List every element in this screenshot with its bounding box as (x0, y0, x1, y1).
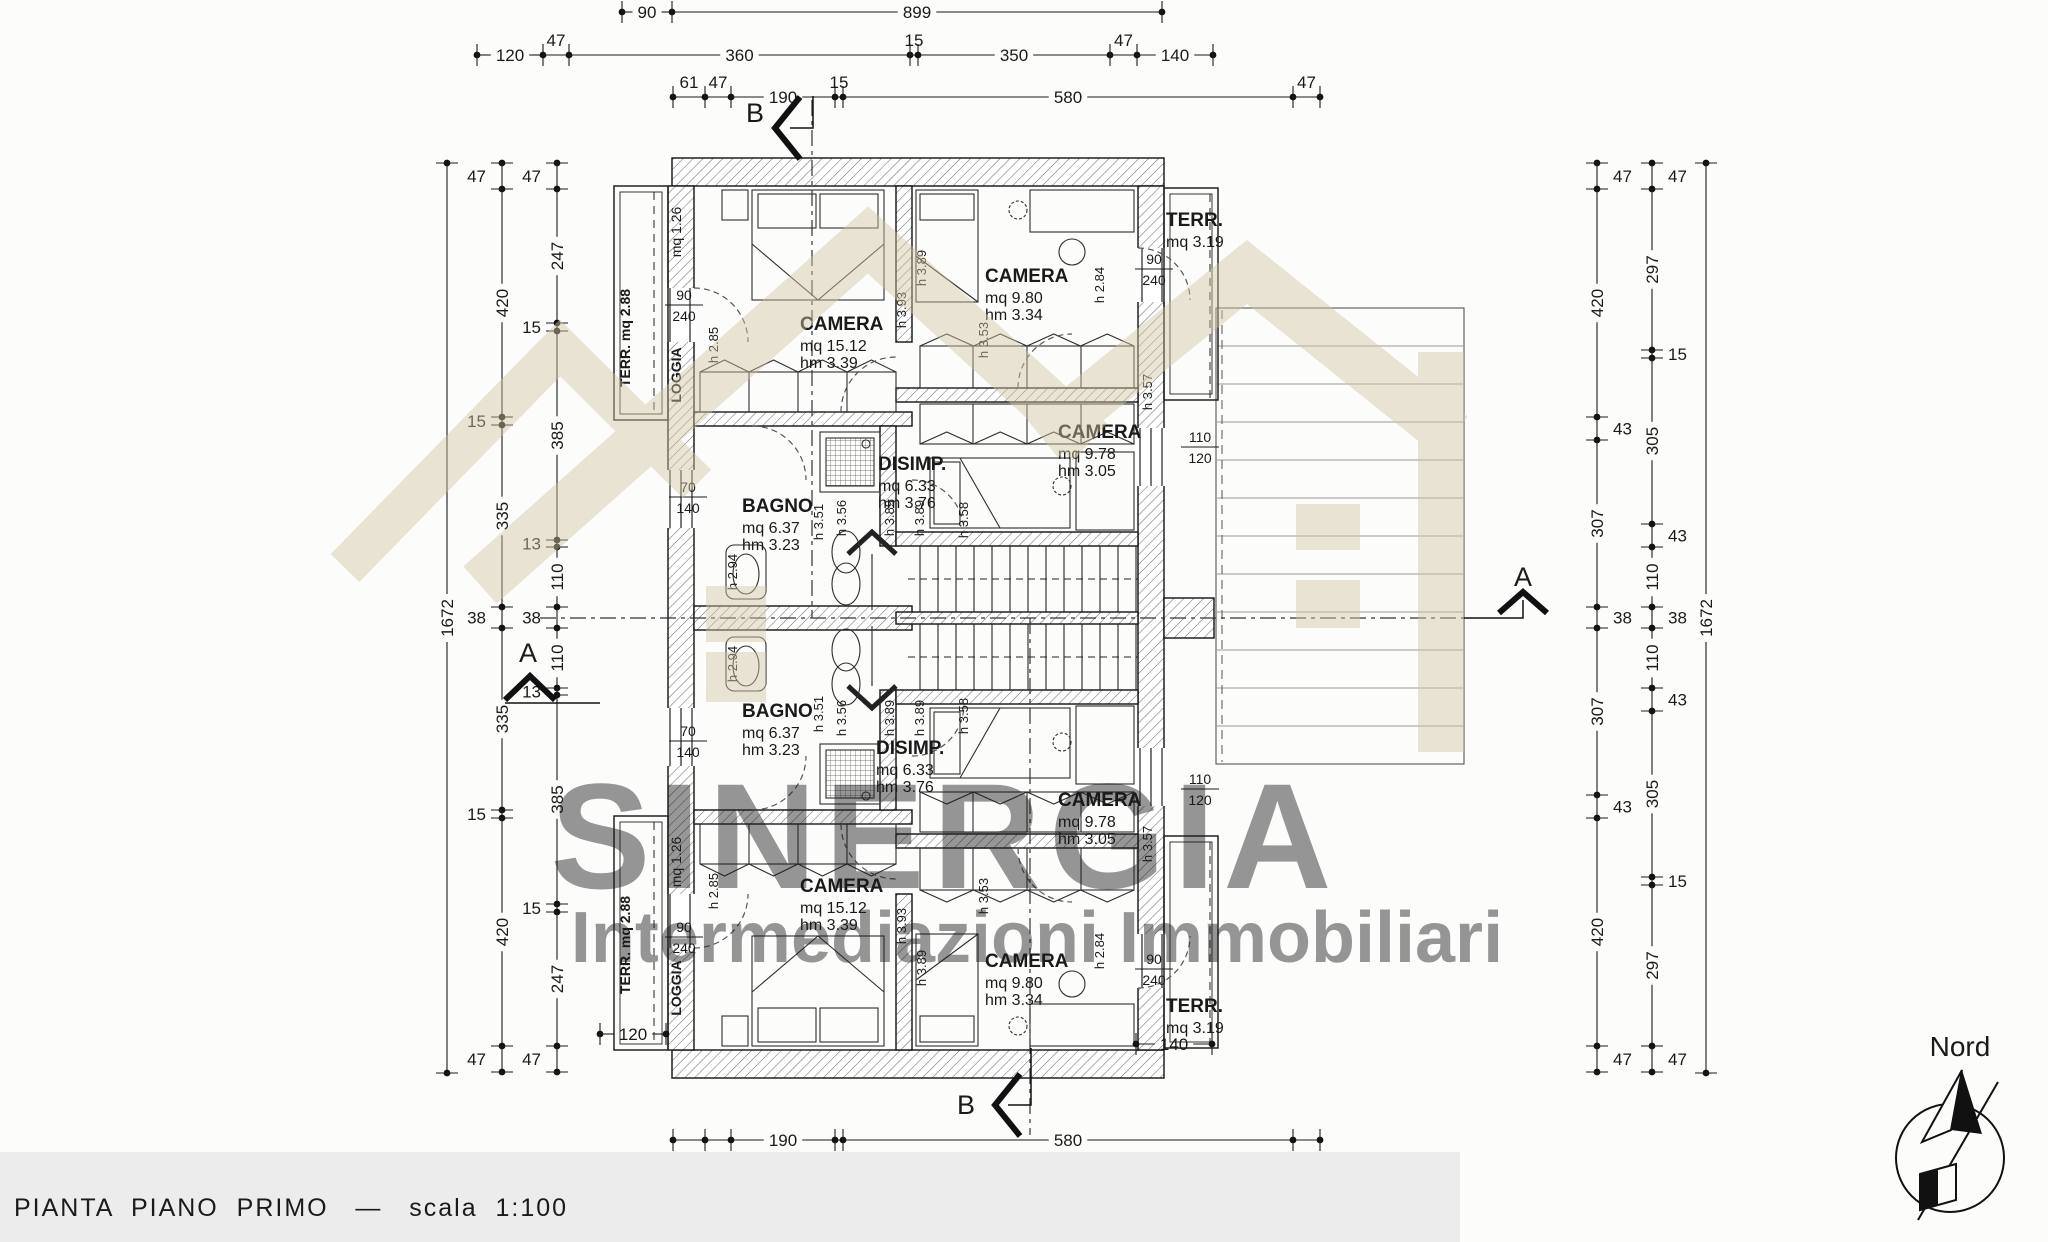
dim-value: 350 (1000, 46, 1028, 65)
opening-height: 120 (1188, 450, 1212, 466)
dim-value: 15 (830, 73, 849, 92)
room-height: hm 3.39 (800, 355, 858, 372)
dim-value: 1672 (438, 599, 457, 637)
dim-value: 307 (1588, 697, 1607, 725)
height-label: h 3.89 (912, 700, 927, 736)
watermark-house-wall (1418, 352, 1464, 752)
room-name: TERR. (1166, 210, 1223, 231)
dim-value: 190 (769, 1131, 797, 1150)
section-letter: B (746, 98, 764, 128)
dim-value: 305 (1643, 780, 1662, 808)
floorplan-page: CAMERAmq 15.12hm 3.39CAMERAmq 9.80hm 3.3… (0, 0, 2048, 1242)
room-label: TERR.mq 3.19 (1166, 996, 1224, 1037)
watermark-window (1296, 504, 1360, 550)
dim-value: 140 (1161, 46, 1189, 65)
dim-value: 335 (493, 705, 512, 733)
dim-value: 420 (493, 289, 512, 317)
dim-value: 47 (467, 1050, 486, 1069)
room-label: TERR.mq 3.19 (1166, 210, 1224, 251)
opening-height: 140 (676, 500, 700, 516)
dim-value: 47 (522, 1050, 541, 1069)
dim-value: 360 (725, 46, 753, 65)
watermark-window (1296, 580, 1360, 628)
shower-top (820, 432, 880, 492)
dim-value: 15 (522, 899, 541, 918)
dim-value: 15 (1668, 345, 1687, 364)
dim-value: 140 (1160, 1035, 1188, 1054)
dim-value: 15 (467, 805, 486, 824)
dim-value: 110 (548, 644, 567, 671)
dim-value: 47 (1613, 1050, 1632, 1069)
dim-value: 305 (1643, 427, 1662, 455)
dim-value: 110 (548, 563, 567, 590)
dim-value: 43 (1613, 420, 1632, 439)
dim-value: 47 (1613, 167, 1632, 186)
dim-value: 1672 (1697, 599, 1716, 637)
room-name: BAGNO (742, 701, 813, 722)
height-label: h 3.58 (956, 698, 971, 734)
dim-value: 47 (1297, 73, 1316, 92)
room-area: mq 6.37 (742, 520, 800, 537)
page-title: PIANTA PIANO PRIMO — scala 1:100 (14, 1194, 568, 1222)
dim-value: 110 (1643, 563, 1662, 590)
dim-value: 43 (1668, 691, 1687, 710)
dim-value: 47 (522, 167, 541, 186)
room-area: mq 3.19 (1166, 234, 1224, 251)
dim-value: 899 (903, 3, 931, 22)
dim-value: 38 (1668, 609, 1687, 628)
floorplan-drawing: CAMERAmq 15.12hm 3.39CAMERAmq 9.80hm 3.3… (0, 0, 2048, 1242)
room-height: hm 3.23 (742, 537, 800, 554)
opening-height: 240 (1142, 272, 1166, 288)
side-label: TERR. mq 2.88 (617, 289, 633, 387)
height-label: h 3.58 (956, 502, 971, 538)
room-name: DISIMP. (878, 454, 946, 475)
opening-width: 110 (1189, 429, 1212, 445)
dim-value: 15 (522, 318, 541, 337)
room-height: hm 3.05 (1058, 463, 1116, 480)
dim-value: 47 (547, 31, 566, 50)
room-area: mq 6.33 (878, 478, 936, 495)
dim-value: 47 (1668, 167, 1687, 186)
watermark-brand: SINERGIA (550, 752, 1339, 920)
compass-tail-fill (1920, 1169, 1938, 1210)
dim-value: 47 (1668, 1050, 1687, 1069)
dim-value: 38 (522, 609, 541, 628)
dim-value: 385 (548, 421, 567, 449)
height-label: h 2.84 (1092, 267, 1107, 303)
dim-value: 120 (496, 46, 524, 65)
watermark-block (706, 586, 766, 642)
opening-width: 90 (1146, 251, 1162, 267)
room-area: mq 9.80 (985, 290, 1043, 307)
height-label: h 3.51 (811, 504, 826, 540)
dim-value: 420 (1588, 918, 1607, 946)
dim-value: 47 (709, 73, 728, 92)
dim-value: 43 (1668, 527, 1687, 546)
dim-value: 297 (1643, 951, 1662, 979)
height-label: h 3.89 (882, 700, 897, 736)
watermark-block (706, 652, 766, 702)
watermark-subtitle: Intermediazioni Immobiliari (571, 898, 1503, 978)
dim-value: 38 (1613, 609, 1632, 628)
dim-value: 420 (1588, 289, 1607, 317)
dim-value: 420 (493, 918, 512, 946)
dim-value: 580 (1054, 1131, 1082, 1150)
dim-value: 120 (619, 1025, 647, 1044)
north-label: Nord (1930, 1031, 1991, 1062)
dim-value: 15 (905, 31, 924, 50)
height-label: h 3.89 (912, 500, 927, 536)
side-label: mq 1.26 (668, 206, 684, 257)
dim-value: 47 (467, 167, 486, 186)
room-name: CAMERA (985, 266, 1069, 287)
dim-value: 110 (1643, 644, 1662, 671)
dim-value: 15 (1668, 872, 1687, 891)
room-area: mq 6.37 (742, 725, 800, 742)
dim-value: 297 (1643, 255, 1662, 283)
section-letter: A (519, 638, 537, 668)
height-label: h 3.89 (882, 500, 897, 536)
room-name: BAGNO (742, 496, 813, 517)
section-letter: A (1514, 562, 1532, 592)
dim-value: 38 (467, 609, 486, 628)
dim-value: 307 (1588, 509, 1607, 537)
title-bar: PIANTA PIANO PRIMO — scala 1:100 (0, 1152, 1460, 1242)
dim-value: 61 (680, 73, 699, 92)
room-name: TERR. (1166, 996, 1223, 1017)
height-label: h 2.94 (725, 554, 740, 590)
dim-value: 43 (1613, 798, 1632, 817)
dim-value: 247 (548, 965, 567, 993)
dim-value: 47 (1114, 31, 1133, 50)
section-letter: B (957, 1090, 975, 1120)
opening-width: 90 (676, 287, 692, 303)
dim-value: 580 (1054, 88, 1082, 107)
opening-width: 70 (680, 723, 696, 739)
height-label: h 3.51 (811, 696, 826, 732)
dim-value: 247 (548, 242, 567, 270)
opening-height: 240 (672, 308, 696, 324)
room-area: mq 15.12 (800, 338, 867, 355)
room-height: hm 3.34 (985, 992, 1043, 1009)
height-label: h 3.56 (834, 500, 849, 536)
height-label: h 3.56 (834, 700, 849, 736)
dim-value: 90 (638, 3, 657, 22)
